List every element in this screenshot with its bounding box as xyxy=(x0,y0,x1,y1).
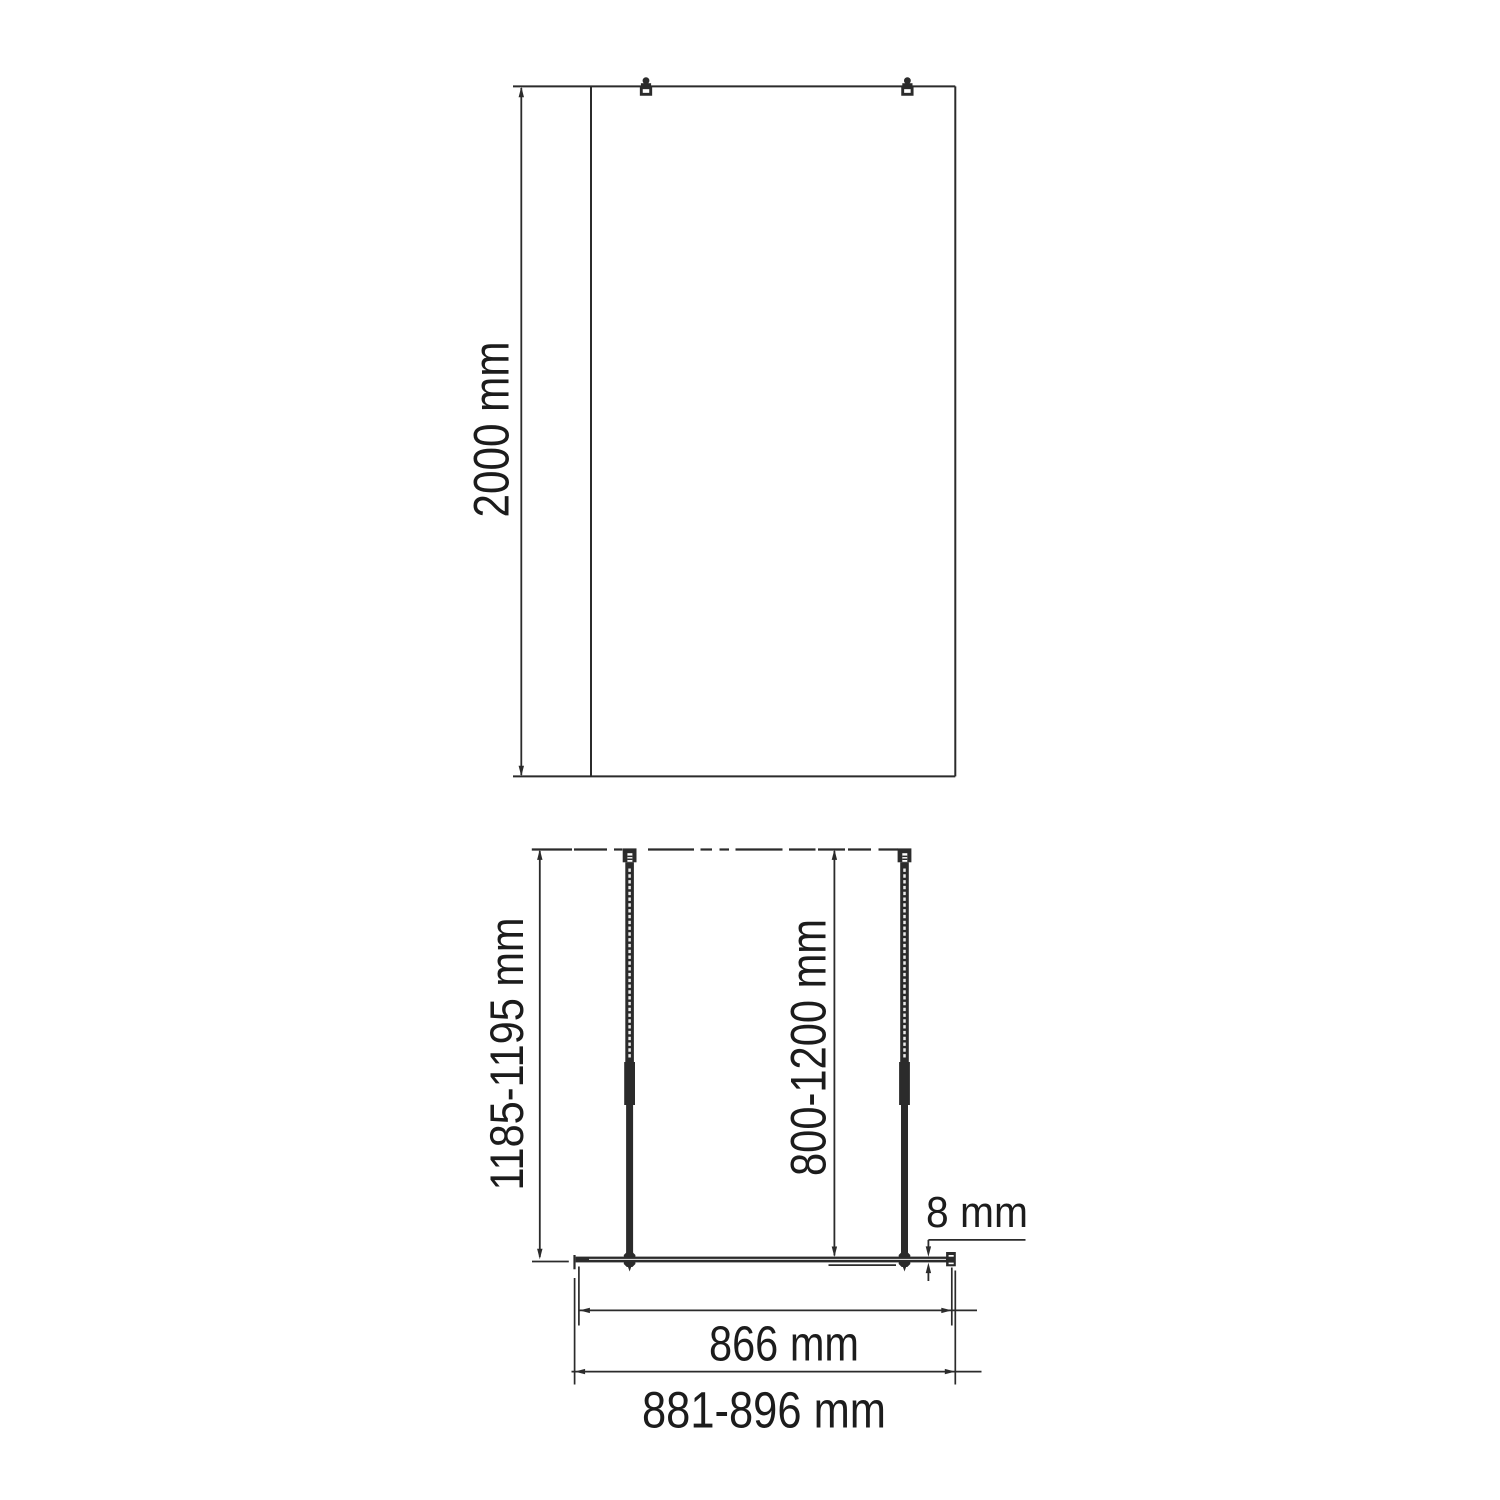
svg-text:800-1200 mm: 800-1200 mm xyxy=(781,919,837,1176)
svg-text:881-896 mm: 881-896 mm xyxy=(642,1381,886,1438)
svg-text:2000 mm: 2000 mm xyxy=(464,342,520,518)
svg-text:1185-1195 mm: 1185-1195 mm xyxy=(480,918,533,1191)
svg-text:8 mm: 8 mm xyxy=(926,1188,1028,1237)
svg-text:866 mm: 866 mm xyxy=(709,1317,859,1371)
